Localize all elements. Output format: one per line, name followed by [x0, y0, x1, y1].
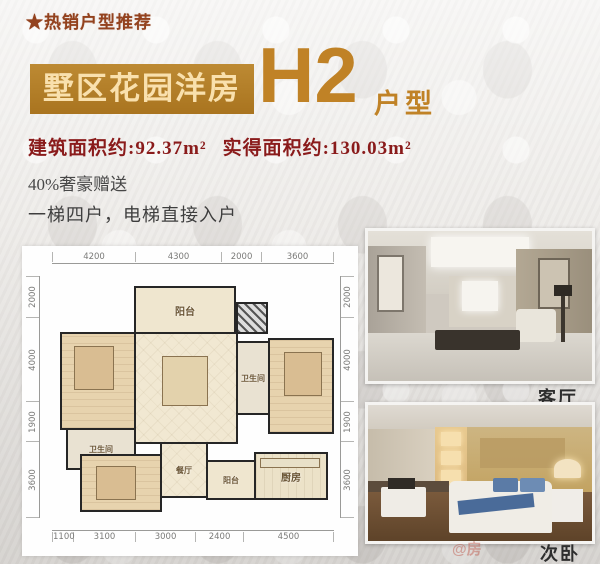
room-label: 卫生间	[89, 444, 113, 455]
photo-niche-cell	[441, 451, 461, 465]
living-room-photo	[365, 228, 595, 384]
photo-sofa	[516, 309, 556, 342]
floorplan-card: 4200 4300 2000 3600 1100 3100 3000 2400 …	[22, 246, 358, 556]
photo-bench	[435, 330, 520, 350]
dim-label: 1900	[343, 411, 353, 433]
promo-poster: ★热销户型推荐 墅区花园洋房 H2 户型 建筑面积约:92.37m² 实得面积约…	[0, 0, 600, 564]
dim-label: 2000	[343, 286, 353, 308]
dim-label: 4000	[343, 349, 353, 371]
dim-label: 3000	[136, 532, 196, 542]
area-actual: 实得面积约:130.03m²	[223, 133, 412, 160]
dim-label: 4500	[244, 532, 334, 542]
photo-floor-lamp	[561, 291, 565, 342]
room-balcony-top: 阳台	[134, 286, 236, 334]
area-built: 建筑面积约:92.37m²	[28, 133, 207, 160]
bedroom-photo-label: 次卧	[540, 540, 580, 564]
unit-suffix: 户型	[374, 82, 436, 121]
watermark: @房	[452, 538, 482, 559]
dim-label: 1100	[52, 532, 74, 542]
room-label: 餐厅	[176, 465, 192, 476]
bedroom-photo	[365, 402, 595, 544]
dim-label: 1900	[28, 411, 38, 433]
room-dining: 餐厅	[160, 442, 208, 498]
dim-label: 3600	[28, 469, 38, 491]
room-bath-center: 卫生间	[236, 341, 270, 415]
photo-pillow	[493, 478, 518, 492]
photo-nightstand	[381, 487, 426, 517]
dim-label: 4000	[28, 349, 38, 371]
room-label: 阳台	[175, 303, 195, 318]
bed-icon	[74, 346, 114, 390]
bed-icon	[96, 466, 136, 500]
title-banner: 墅区花园洋房	[30, 64, 254, 114]
elevator-shaft	[236, 302, 268, 334]
photo-niche-cell	[441, 432, 461, 446]
room-label: 厨房	[281, 469, 301, 484]
dim-label: 2400	[196, 532, 244, 542]
dims-left: 2000 4000 1900 3600	[26, 276, 40, 518]
room-label: 阳台	[223, 475, 239, 486]
dims-top: 4200 4300 2000 3600	[52, 252, 334, 264]
photo-ceiling-cove	[431, 237, 530, 267]
dim-label: 4200	[52, 252, 136, 262]
unit-code: H2	[258, 36, 358, 114]
gift-line: 40%奢豪赠送	[28, 170, 127, 195]
dim-label: 3600	[262, 252, 334, 262]
photo-tv-box	[388, 478, 415, 489]
photo-lamp-shade	[554, 285, 572, 296]
room-label: 卫生间	[241, 373, 265, 384]
photo-wall-art	[480, 438, 565, 468]
tagline: ★热销户型推荐	[26, 8, 152, 33]
photo-art-frame	[377, 255, 404, 312]
kitchen-counter-icon	[260, 458, 320, 468]
dims-right: 2000 4000 1900 3600	[340, 276, 354, 518]
dim-label: 4300	[136, 252, 222, 262]
bed-icon	[284, 352, 322, 396]
dim-label: 3600	[343, 469, 353, 491]
room-balcony-bottom: 阳台	[206, 460, 256, 500]
photo-table-lamp	[554, 459, 581, 478]
photo-nightstand	[552, 489, 583, 522]
photo-window	[462, 281, 498, 311]
dim-label: 3100	[74, 532, 136, 542]
photo-pillow	[520, 478, 545, 492]
elevator-line: 一梯四户，电梯直接入户	[28, 201, 237, 227]
dims-bottom: 1100 3100 3000 2400 4500	[52, 530, 334, 542]
area-line: 建筑面积约:92.37m² 实得面积约:130.03m²	[28, 133, 412, 160]
dim-label: 2000	[28, 286, 38, 308]
dim-label: 2000	[222, 252, 262, 262]
sofa-icon	[162, 356, 208, 406]
